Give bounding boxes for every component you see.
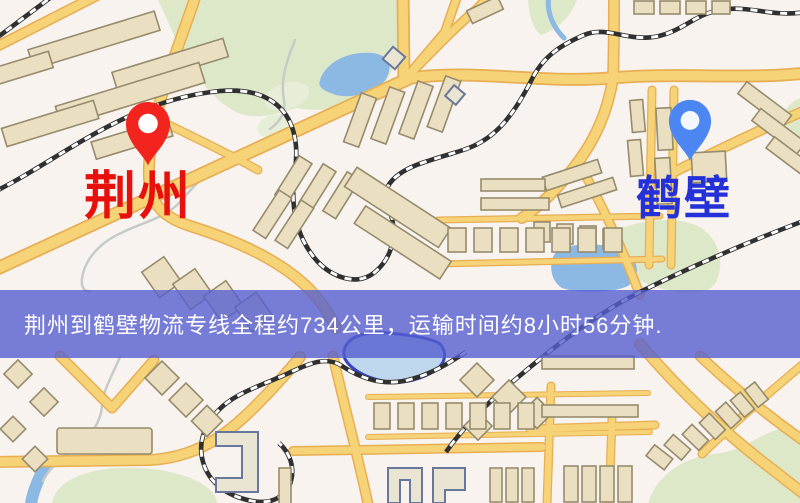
route-info-banner: 荆州到鹤壁物流专线全程约734公里，运输时间约8小时56分钟.	[0, 290, 800, 358]
origin-map-pin-icon[interactable]	[124, 99, 172, 169]
origin-city-label: 荆州	[84, 172, 192, 224]
destination-city-label: 鹤壁	[636, 176, 732, 222]
destination-map-pin-icon[interactable]	[667, 97, 713, 164]
map-canvas[interactable]: 荆州 鹤壁 荆州到鹤壁物流专线全程约734公里，运输时间约8小时56分钟.	[0, 0, 800, 503]
route-summary-text: 荆州到鹤壁物流专线全程约734公里，运输时间约8小时56分钟.	[0, 308, 663, 340]
map-graphic	[0, 0, 800, 503]
